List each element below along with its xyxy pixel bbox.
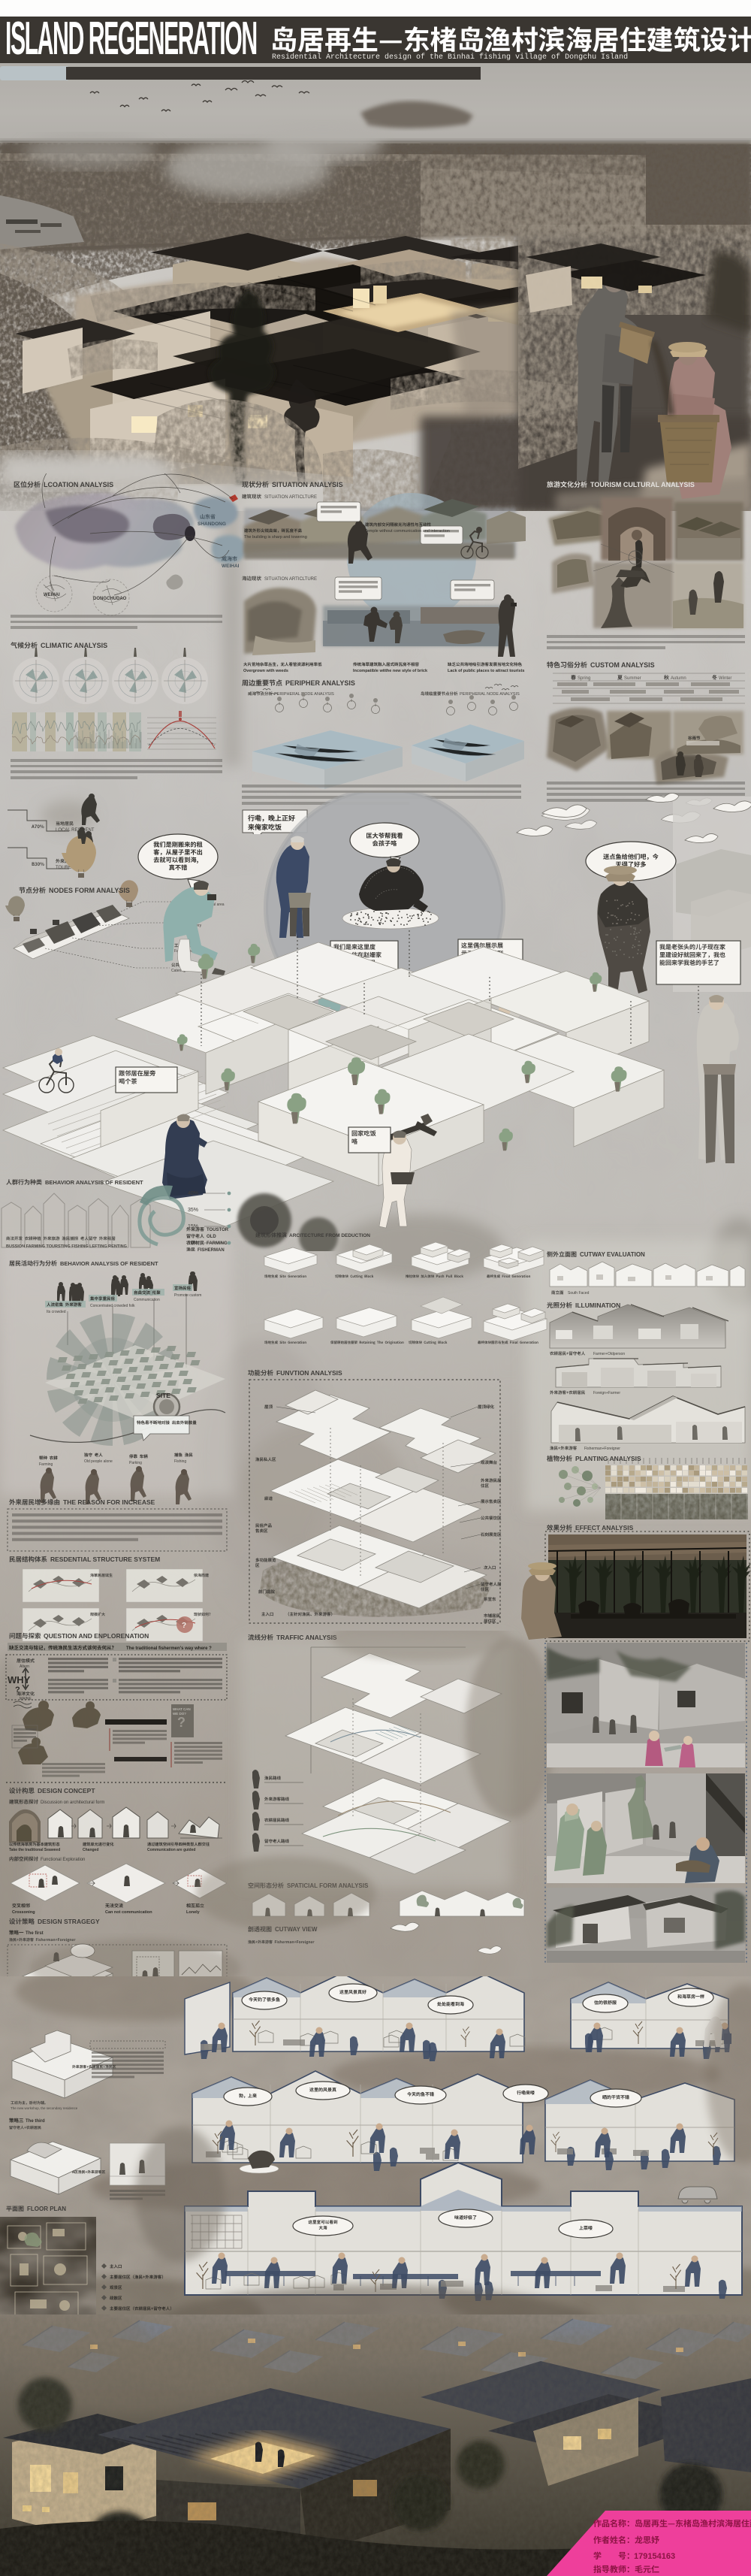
svg-text:CLIMATIC ANALYSIS: CLIMATIC ANALYSIS <box>41 642 107 649</box>
svg-text:ILLUMINATION: ILLUMINATION <box>575 1302 620 1309</box>
svg-text:Its crowded: Its crowded <box>47 1310 66 1314</box>
svg-text:Fishing: Fishing <box>174 1459 186 1464</box>
svg-text:The first: The first <box>26 1931 44 1936</box>
svg-text:FLOOR PLAN: FLOOR PLAN <box>27 2206 66 2212</box>
svg-text:Autumn: Autumn <box>671 676 686 681</box>
svg-text:DESIGN CONCEPT: DESIGN CONCEPT <box>38 1787 95 1794</box>
svg-text:THE REASON FOR INCREASE: THE REASON FOR INCREASE <box>63 1498 155 1506</box>
svg-text:Promote custom: Promote custom <box>174 1293 201 1298</box>
svg-text:?: ? <box>182 1622 186 1630</box>
svg-text:SITUATION ANALYSIS: SITUATION ANALYSIS <box>272 481 343 488</box>
svg-text:Parking: Parking <box>129 1461 142 1465</box>
svg-text:Communication: Communication <box>134 1298 160 1302</box>
svg-text:ARCITECTURE FROM DEDUCTION: ARCITECTURE FROM DEDUCTION <box>289 1233 370 1238</box>
svg-text:PERIPHERAL NODE ANALYSIS: PERIPHERAL NODE ANALYSIS <box>460 692 520 697</box>
svg-text:35%: 35% <box>188 1208 198 1213</box>
svg-text:Farming: Farming <box>39 1462 53 1467</box>
svg-text:FUNVTION ANALYSIS: FUNVTION ANALYSIS <box>276 1369 342 1377</box>
svg-text:SITUATION ARTICLTURE: SITUATION ARTICLTURE <box>264 495 317 500</box>
svg-text:Foreign+Farmer: Foreign+Farmer <box>593 1391 620 1395</box>
svg-text:TOURISM CULTURAL ANALYSIS: TOURISM CULTURAL ANALYSIS <box>590 481 695 488</box>
svg-text:Temple without communication a: Temple without communication and interac… <box>365 529 450 534</box>
svg-text:?: ? <box>15 1686 20 1695</box>
svg-text:TRAFFIC ANALYSIS: TRAFFIC ANALYSIS <box>276 1634 337 1641</box>
svg-text:Crossoning: Crossoning <box>12 1910 35 1915</box>
svg-text:CUTWAY EVALUATION: CUTWAY EVALUATION <box>580 1251 645 1258</box>
svg-text:179154163: 179154163 <box>634 2552 675 2561</box>
svg-text:EFFECT ANALYSIS: EFFECT ANALYSIS <box>575 1524 634 1531</box>
svg-text:Functional Exploration: Functional Exploration <box>41 1858 85 1862</box>
svg-text:Winter: Winter <box>719 676 731 681</box>
svg-text:The building is sharp and towe: The building is sharp and towering <box>244 535 307 540</box>
svg-text:Incompatible witthe new style: Incompatible witthe new style of brick <box>353 669 428 673</box>
svg-text:SHANDONG: SHANDONG <box>198 522 226 527</box>
svg-text:SITE: SITE <box>156 1392 170 1399</box>
svg-text:WHY: WHY <box>8 1674 31 1686</box>
svg-text:Communication are guided: Communication are guided <box>147 1848 195 1852</box>
svg-text:Farmer+Oldperson: Farmer+Oldperson <box>593 1352 625 1356</box>
svg-text:Changed: Changed <box>83 1848 98 1852</box>
svg-text:WHAT CAN: WHAT CAN <box>173 1707 191 1711</box>
svg-text:Summer: Summer <box>624 676 641 681</box>
svg-text:MAINE: MAINE <box>20 1697 32 1701</box>
svg-text:?: ? <box>177 1715 185 1730</box>
svg-text:The traditional fishermen's wa: The traditional fishermen's way where ? <box>126 1646 212 1651</box>
svg-text:DONGCHUDAO: DONGCHUDAO <box>93 597 127 601</box>
svg-text:BUSSION FARMING TOURSTING: BUSSION FARMING TOURSTING FISHING LEFTIN… <box>6 1244 127 1249</box>
svg-text:WE DO?: WE DO? <box>173 1712 186 1716</box>
svg-text:WEIHAI: WEIHAI <box>44 593 60 597</box>
svg-text:Old people alone: Old people alone <box>84 1459 113 1464</box>
svg-text:Take the traditional Seaweed: Take the traditional Seaweed <box>9 1848 60 1852</box>
svg-text:PERIPHER ANALYSIS: PERIPHER ANALYSIS <box>285 679 355 687</box>
svg-text:BEHAVIOR ANALYSIS OF RESIDENT: BEHAVIOR ANALYSIS OF RESIDENT <box>45 1179 143 1186</box>
svg-text:BEHAVIOR ANALYSIS OF RESIDENT: BEHAVIOR ANALYSIS OF RESIDENT <box>60 1260 158 1267</box>
svg-text:WEIHAI: WEIHAI <box>222 564 240 569</box>
svg-text:Can not communication: Can not communication <box>105 1910 152 1915</box>
svg-text:Spring: Spring <box>578 676 590 681</box>
svg-text:NODES FORM ANALYSIS: NODES FORM ANALYSIS <box>49 887 130 894</box>
svg-text:Discussion on architectural fo: Discussion on architectural form <box>41 1800 104 1805</box>
svg-text:LCOATION ANALYSIS: LCOATION ANALYSIS <box>44 481 113 488</box>
svg-text:Altern: Altern <box>20 1664 29 1669</box>
svg-text:Lack of public places to attra: Lack of public places to attract tourist… <box>448 669 524 673</box>
svg-text:40%: 40% <box>188 1191 198 1196</box>
svg-text:The third: The third <box>26 2119 45 2124</box>
svg-text:RESDENTIAL STRUCTURE SYSTEM: RESDENTIAL STRUCTURE SYSTEM <box>50 1556 160 1563</box>
svg-text:DESIGN STRAGEGY: DESIGN STRAGEGY <box>38 1918 100 1925</box>
svg-text:The new workshop, the secondar: The new workshop, the secondary residenc… <box>11 2106 78 2110</box>
svg-text:Overgrown with weeds: Overgrown with weeds <box>243 669 288 673</box>
svg-text:Lonely: Lonely <box>186 1910 201 1915</box>
svg-text:Fisherman+Foreigner: Fisherman+Foreigner <box>584 1447 620 1451</box>
svg-text:SITUATION ARTICLTURE: SITUATION ARTICLTURE <box>264 577 317 582</box>
svg-text:QUESTION AND ENPLORENATION: QUESTION AND ENPLORENATION <box>44 1632 149 1640</box>
svg-text:CUSTOM ANALYSIS: CUSTOM ANALYSIS <box>590 661 655 669</box>
svg-text:South Faced: South Faced <box>568 1291 590 1296</box>
